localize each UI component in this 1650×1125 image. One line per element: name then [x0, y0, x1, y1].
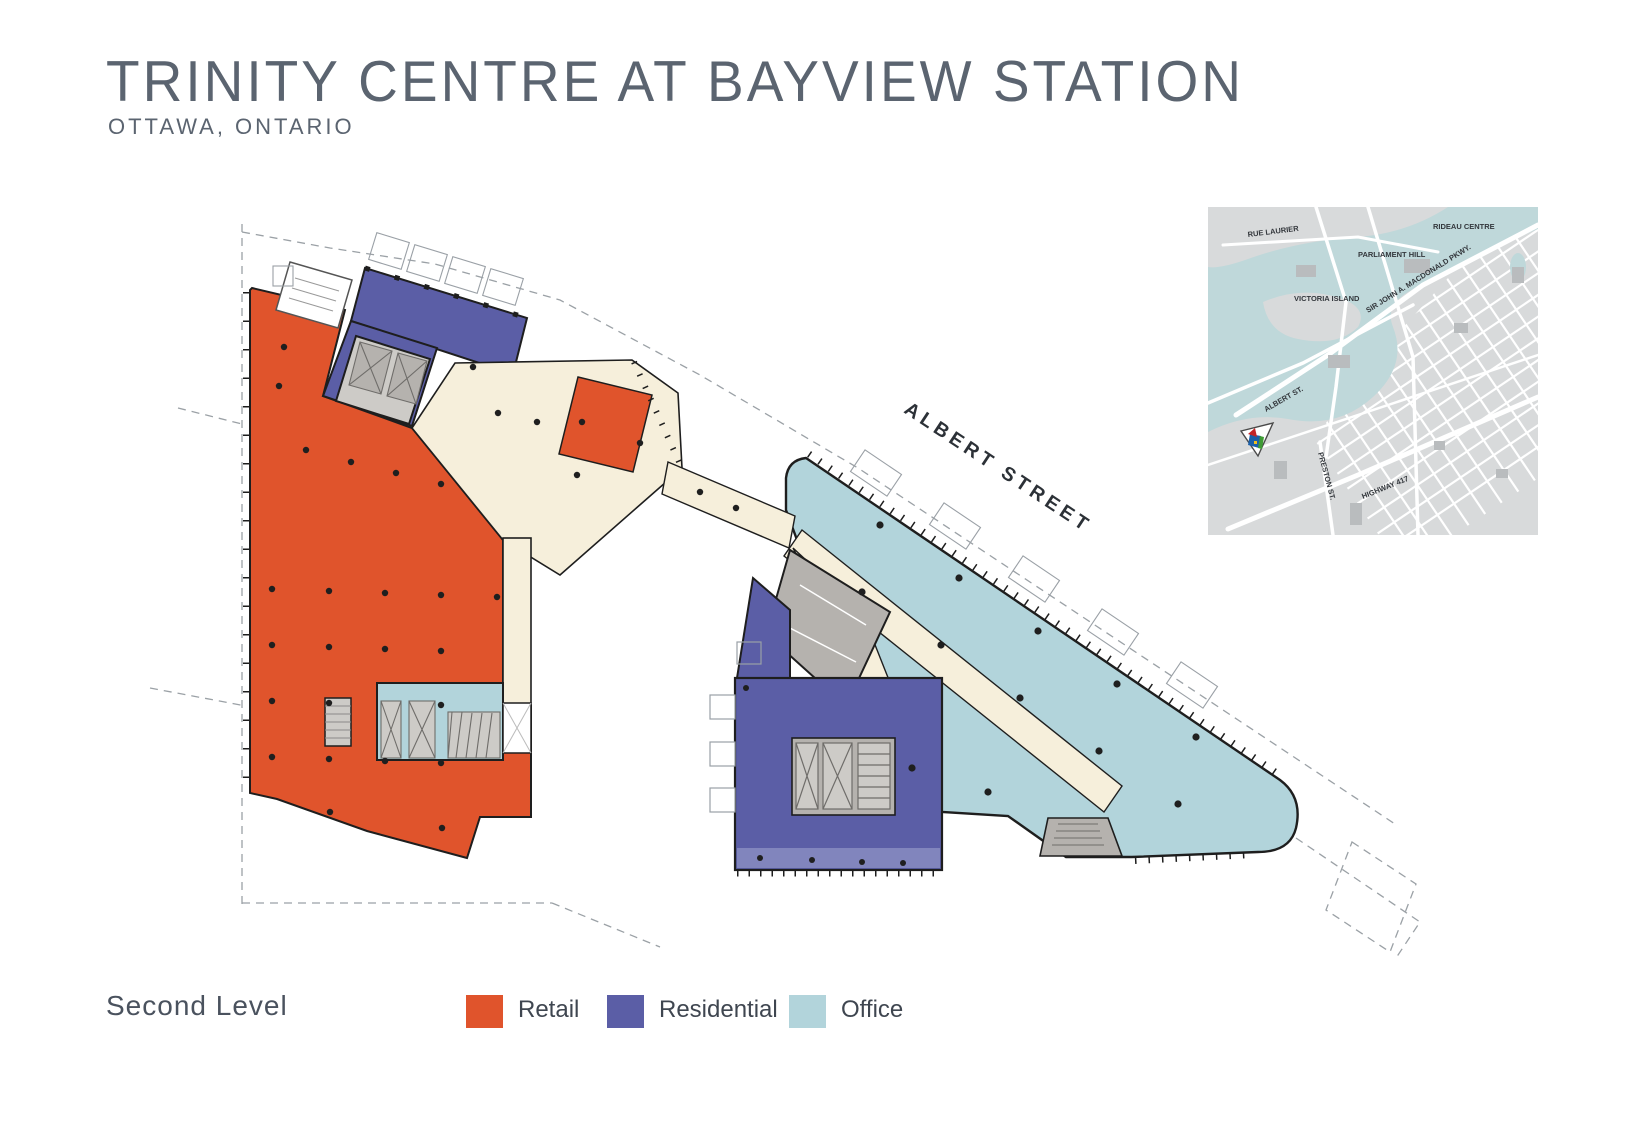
pedestrian-bridge: [662, 462, 795, 548]
legend-label-office: Office: [841, 996, 903, 1024]
legend-label-retail: Retail: [518, 996, 579, 1024]
street-label: ALBERT STREET: [900, 398, 1096, 538]
level-label: Second Level: [106, 990, 288, 1022]
legend-swatch-office: [789, 995, 826, 1028]
office-stair-core: [1040, 818, 1122, 856]
map-label-victoria-island: VICTORIA ISLAND: [1294, 294, 1360, 303]
brochure-page: TRINITY CENTRE AT BAYVIEW STATION OTTAWA…: [0, 0, 1650, 1125]
map-label-rideau-centre: RIDEAU CENTRE: [1433, 222, 1495, 231]
location-inset-map: RUE LAURIER RIDEAU CENTRE PARLIAMENT HIL…: [1208, 207, 1538, 535]
legend-swatch-residential: [607, 995, 644, 1028]
legend-swatch-retail: [466, 995, 503, 1028]
map-label-parliament-hill: PARLIAMENT HILL: [1358, 250, 1426, 259]
floor-plan: ALBERT STREET: [0, 0, 1650, 1125]
legend-label-residential: Residential: [659, 996, 778, 1024]
